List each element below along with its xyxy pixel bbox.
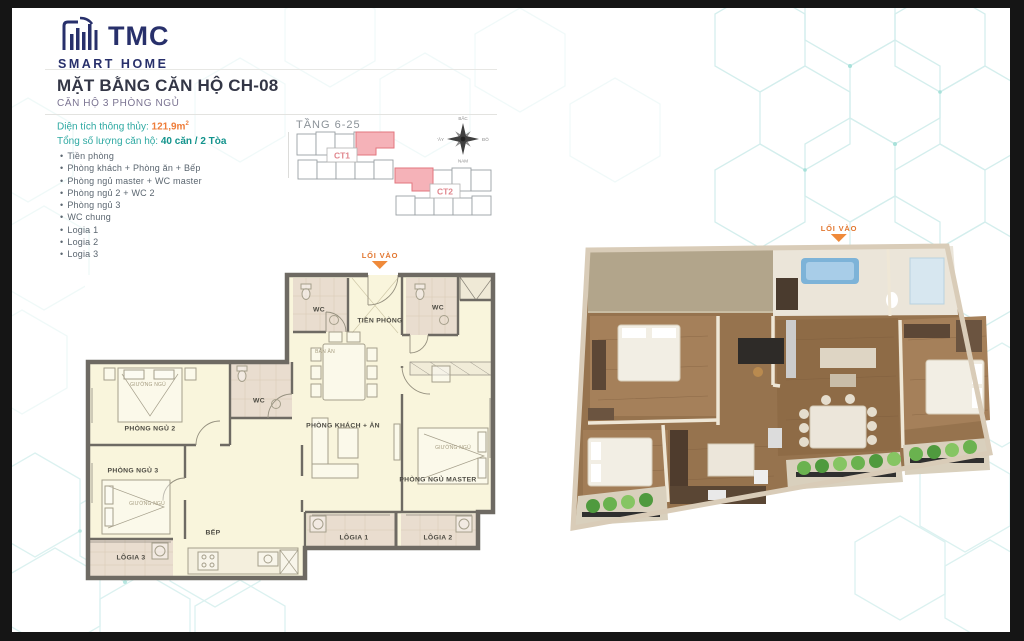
keyplan-ct1-label: CT1 bbox=[334, 151, 350, 161]
room-list-item: WC chung bbox=[60, 211, 202, 223]
label-hall: TIỀN PHÒNG bbox=[357, 318, 402, 325]
compass-west-label: TÂY bbox=[437, 136, 444, 142]
label-wc-mid: WC bbox=[253, 398, 265, 405]
keyplan-ct1-highlight-unit bbox=[356, 132, 394, 155]
logo: TMC SMART HOME bbox=[58, 16, 169, 71]
floor3d-tan-block bbox=[588, 250, 773, 312]
room-list: Tiền phòng Phòng khách + Phòng ăn + Bếp … bbox=[60, 150, 202, 261]
keyplan-ct2: CT2 bbox=[394, 167, 494, 217]
entrance-arrow-2d bbox=[372, 261, 388, 269]
room-list-item: Logia 2 bbox=[60, 236, 202, 248]
wardrobe-topright bbox=[460, 277, 493, 300]
keyplan-ct2-highlight-unit bbox=[395, 168, 433, 191]
room-list-item: Phòng ngủ 3 bbox=[60, 199, 202, 211]
label-wc-right: WC bbox=[432, 305, 444, 312]
label-living: PHÒNG KHÁCH + ĂN bbox=[306, 423, 380, 430]
keyplan-ct1: CT1 bbox=[296, 131, 398, 181]
label-master: PHÒNG NGỦ MASTER bbox=[399, 477, 476, 484]
total-label: Tổng số lượng căn hộ: bbox=[57, 136, 158, 147]
label-logia3: LÔGIA 3 bbox=[116, 555, 145, 562]
total-value: 40 căn / 2 Tòa bbox=[161, 136, 227, 147]
compass-rose: BẮC NAM ĐÔNG TÂY bbox=[437, 112, 489, 166]
label-wc-left: WC bbox=[313, 307, 325, 314]
compass-north-label: BẮC bbox=[458, 114, 468, 121]
logo-building-icon bbox=[58, 16, 102, 56]
page-subtitle: CĂN HỘ 3 PHÒNG NGỦ bbox=[57, 98, 179, 109]
label-logia2: LÔGIA 2 bbox=[423, 535, 452, 542]
area-value: 121,9m bbox=[152, 121, 186, 132]
entrance-label-2d: LỐI VÀO bbox=[362, 251, 398, 269]
area-label: Diện tích thông thủy: bbox=[57, 121, 149, 132]
room-list-item: Phòng ngủ 2 + WC 2 bbox=[60, 187, 202, 199]
entrance-text-2d: LỐI VÀO bbox=[362, 251, 398, 260]
area-line: Diện tích thông thủy: 121,9m2 bbox=[57, 121, 189, 132]
room-list-item: Phòng khách + Phòng ăn + Bếp bbox=[60, 162, 202, 174]
total-line: Tổng số lượng căn hộ: 40 căn / 2 Tòa bbox=[57, 136, 226, 147]
frame-left bbox=[0, 0, 12, 641]
page-title: MẶT BẰNG CĂN HỘ CH-08 bbox=[57, 76, 278, 96]
label-bedroom2: PHÒNG NGỦ 2 bbox=[125, 426, 176, 433]
label-logia1: LÔGIA 1 bbox=[339, 535, 368, 542]
compass-south-label: NAM bbox=[458, 159, 468, 164]
logo-tagline: SMART HOME bbox=[58, 57, 169, 71]
entrance-label-3d: LỐI VÀO bbox=[821, 224, 857, 242]
floor3d-bathrooms bbox=[773, 246, 958, 316]
room-list-item: Logia 1 bbox=[60, 224, 202, 236]
room-list-item: Logia 3 bbox=[60, 248, 202, 260]
subtitle-divider bbox=[45, 114, 497, 115]
frame-right bbox=[1010, 0, 1024, 641]
room-list-item: Phòng ngủ master + WC master bbox=[60, 175, 202, 187]
room-list-item: Tiền phòng bbox=[60, 150, 202, 162]
label-bed3: GIƯỜNG NGỦ bbox=[129, 501, 165, 507]
area-sup: 2 bbox=[185, 121, 188, 127]
compass-east-label: ĐÔNG bbox=[482, 136, 489, 142]
keyplan-ct2-label: CT2 bbox=[437, 187, 453, 197]
floor-range-label: TẦNG 6-25 bbox=[296, 119, 361, 131]
adjacent-unit-block bbox=[85, 275, 287, 362]
label-bedroom3: PHÒNG NGỦ 3 bbox=[108, 468, 159, 475]
label-bed-master: GIƯỜNG NGỦ bbox=[435, 445, 471, 451]
label-kitchen: BẾP bbox=[206, 530, 221, 537]
entrance-arrow-3d bbox=[831, 234, 847, 242]
logo-brand: TMC bbox=[108, 21, 169, 52]
floorplan-3d bbox=[558, 220, 1010, 565]
entrance-text-3d: LỐI VÀO bbox=[821, 224, 857, 233]
label-dining: BÀN ĂN bbox=[315, 349, 335, 355]
label-bed2: GIƯỜNG NGỦ bbox=[130, 382, 166, 388]
frame-bottom bbox=[0, 632, 1024, 641]
info-keyplan-divider bbox=[288, 132, 289, 178]
frame-top bbox=[0, 0, 1024, 8]
wardrobe-master bbox=[410, 362, 492, 375]
